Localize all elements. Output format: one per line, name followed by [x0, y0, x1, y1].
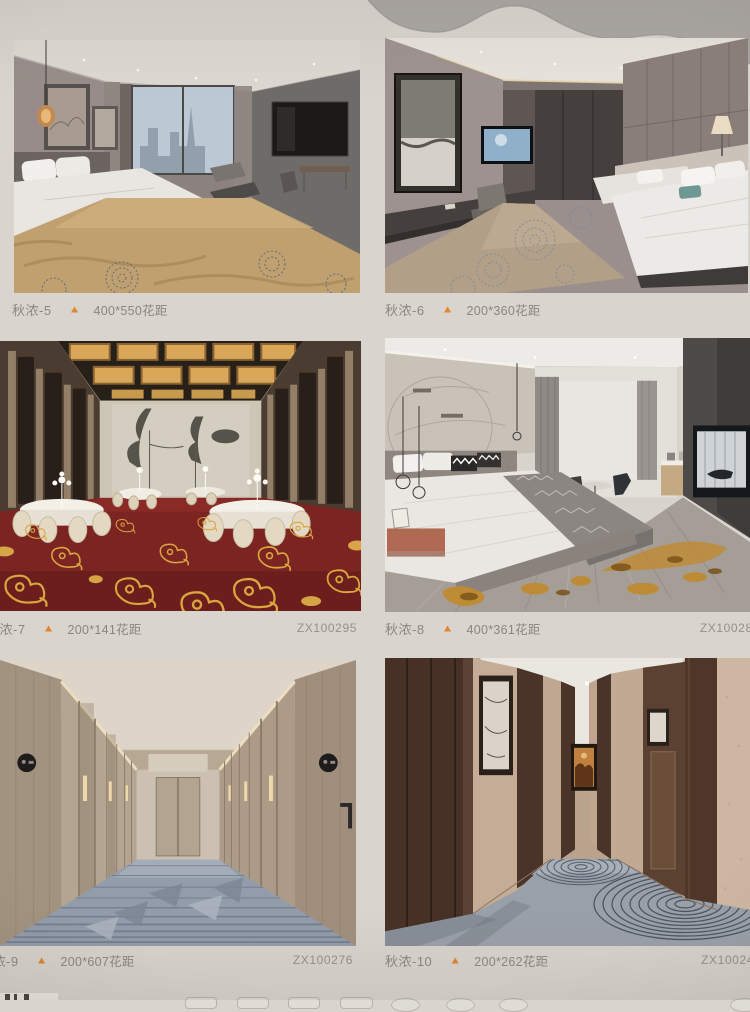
product-label: 秋浓-6 [385, 300, 425, 319]
product-code: ZX100276 [293, 952, 353, 968]
product-spec: 400*361花距 [466, 619, 540, 638]
product-photo-qiunong-9 [0, 660, 356, 946]
caption-qiunong-5: 秋浓-5 ▲ 400*550花距 [12, 301, 168, 317]
caption-qiunong-9: 秋浓-9 ▲ 200*607花距 [0, 952, 135, 968]
product-photo-qiunong-5 [14, 40, 360, 293]
spec-triangle-icon: ▲ [69, 303, 81, 315]
spec-triangle-icon: ▲ [442, 303, 454, 315]
product-code: ZX100284 [700, 620, 750, 636]
product-label: 秋浓-10 [385, 951, 432, 970]
product-photo-qiunong-6 [385, 38, 748, 293]
product-spec: 200*607花距 [60, 951, 134, 970]
spec-triangle-icon: ▲ [442, 622, 454, 634]
product-spec: 200*262花距 [474, 951, 548, 970]
product-photo-qiunong-8 [385, 338, 750, 612]
caption-qiunong-6: 秋浓-6 ▲ 200*360花距 [385, 301, 541, 317]
spec-triangle-icon: ▲ [43, 622, 55, 634]
caption-qiunong-10: 秋浓-10 ▲ 200*262花距 [385, 952, 548, 968]
caption-qiunong-8: 秋浓-8 ▲ 400*361花距 [385, 620, 541, 636]
product-spec: 200*360花距 [466, 300, 540, 319]
catalog-page: 秋浓-5 ▲ 400*550花距 秋浓-6 ▲ 200*360花距 秋浓-7 ▲… [0, 0, 750, 1000]
product-label: 秋浓-9 [0, 951, 19, 970]
product-spec: 400*550花距 [93, 300, 167, 319]
spec-triangle-icon: ▲ [449, 954, 461, 966]
product-photo-qiunong-10 [385, 658, 750, 946]
product-code: ZX10024 [701, 952, 750, 968]
product-code: ZX100295 [297, 620, 357, 636]
product-label: 秋浓-7 [0, 619, 26, 638]
page-edge-fragment [0, 993, 58, 1000]
product-photo-qiunong-7 [0, 341, 361, 611]
caption-qiunong-7: 秋浓-7 ▲ 200*141花距 [0, 620, 142, 636]
product-label: 秋浓-8 [385, 619, 425, 638]
product-label: 秋浓-5 [12, 300, 52, 319]
spec-triangle-icon: ▲ [36, 954, 48, 966]
next-row-peek [0, 995, 750, 1000]
product-spec: 200*141花距 [67, 619, 141, 638]
